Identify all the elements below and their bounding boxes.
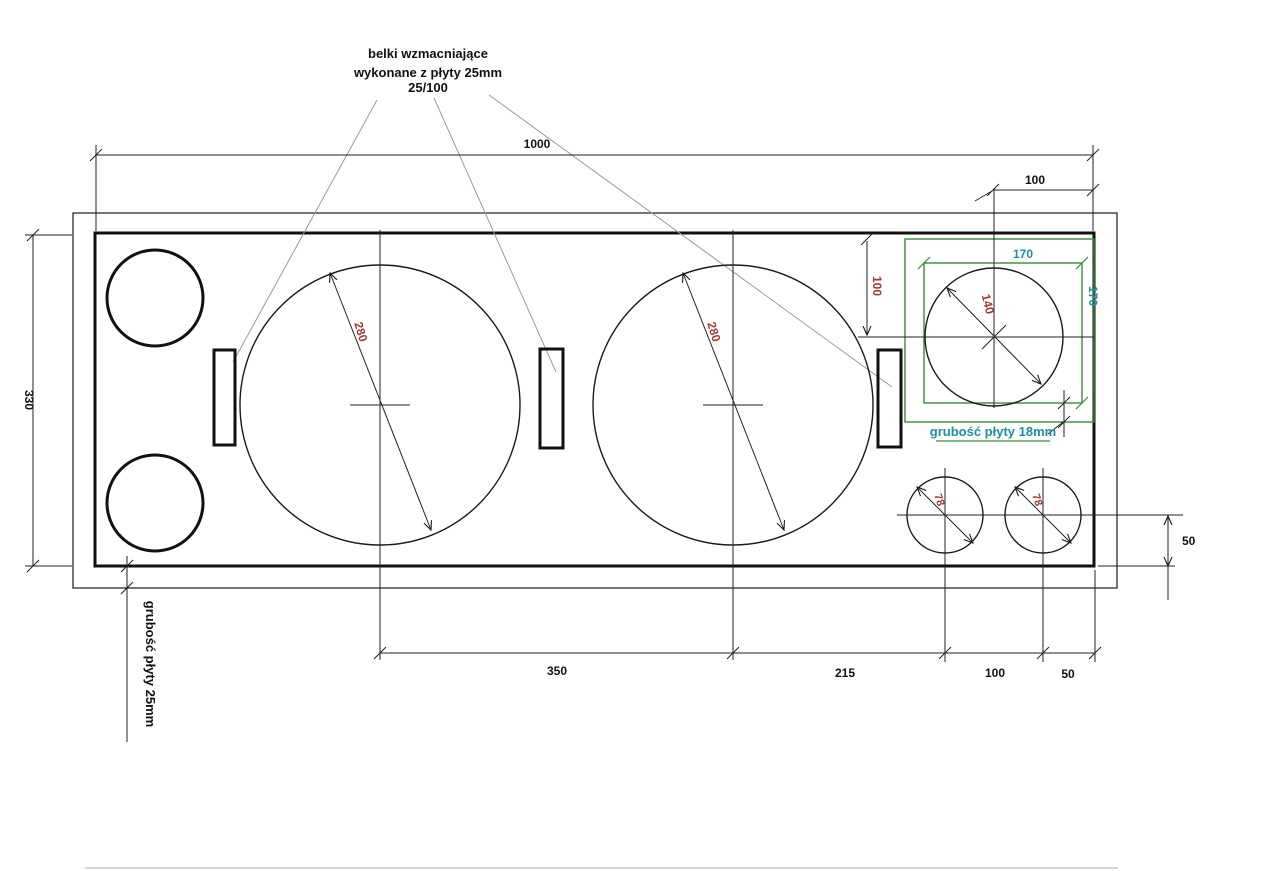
dim-label-100-bottom: 100 <box>985 666 1005 680</box>
dim-label-215: 215 <box>835 666 855 680</box>
dim-label-100-top: 100 <box>1025 173 1045 187</box>
note-beams-line2: wykonane z płyty 25mm <box>353 65 502 80</box>
port-circle-top-left <box>107 250 203 346</box>
dim-label-280-left: 280 <box>351 320 370 344</box>
note-board-25mm: grubość płyty 25mm <box>143 601 158 727</box>
tweeter-box-inner <box>924 263 1082 403</box>
dim-label-50-bottom: 50 <box>1061 667 1075 681</box>
reinforcing-beam-right <box>878 350 901 447</box>
note-beams-line1: belki wzmacniające <box>368 46 488 61</box>
reinforcing-beam-left <box>214 350 235 445</box>
dim-label-170-top: 170 <box>1013 247 1033 261</box>
leader-100-top <box>975 191 992 201</box>
dim-label-100-red: 100 <box>870 276 884 296</box>
note-board-18mm: grubość płyty 18mm <box>930 424 1056 439</box>
dim-label-330: 330 <box>22 390 36 410</box>
dim-label-1000: 1000 <box>524 137 551 151</box>
dim-label-280-right: 280 <box>704 320 723 344</box>
port-circle-bottom-left <box>107 455 203 551</box>
drawing-svg: 280 280 140 170 170 100 grubość płyty 18… <box>0 0 1273 871</box>
panel-inner-outline <box>95 233 1094 566</box>
technical-drawing: 280 280 140 170 170 100 grubość płyty 18… <box>0 0 1273 871</box>
dim-label-170-right: 170 <box>1086 286 1100 306</box>
dim-label-78-right: 78 <box>1029 492 1044 507</box>
dim-label-78-left: 78 <box>931 492 946 507</box>
dim-label-50-right: 50 <box>1182 534 1196 548</box>
note-beams-line3: 25/100 <box>408 80 448 95</box>
reinforcing-beam-middle <box>540 349 563 448</box>
dim-label-350: 350 <box>547 664 567 678</box>
panel-outer-outline <box>73 213 1117 588</box>
tweeter-box-outer <box>905 239 1094 422</box>
